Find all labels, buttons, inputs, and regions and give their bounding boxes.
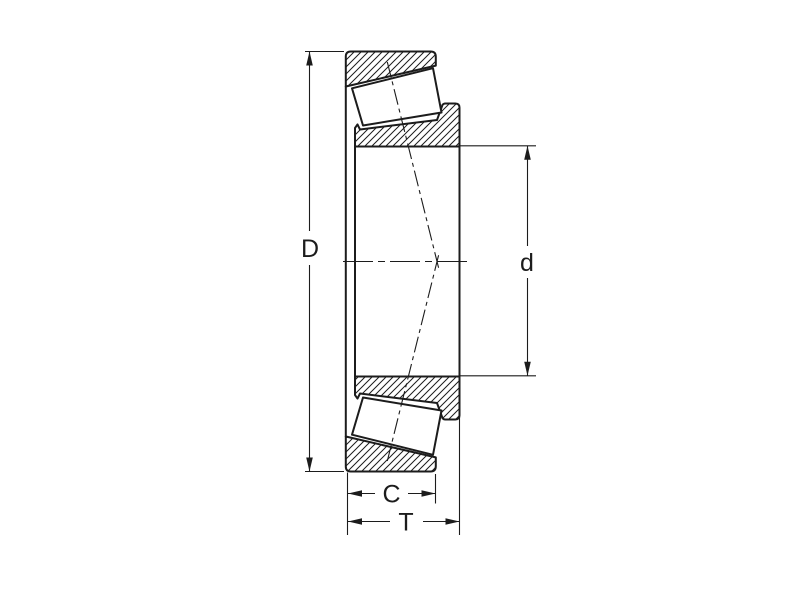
dimension-outer-diameter: D xyxy=(301,52,344,472)
arrow-up-icon xyxy=(306,52,313,66)
arrow-left-icon xyxy=(348,490,362,497)
arrow-down-icon xyxy=(524,362,531,376)
arrow-right-icon xyxy=(446,518,460,525)
dimension-bore-diameter: d xyxy=(460,146,537,376)
dimension-cup-width: C xyxy=(348,473,436,536)
bore-diameter-label: d xyxy=(520,249,534,277)
cup-width-label: C xyxy=(382,481,400,509)
arrow-right-icon xyxy=(422,490,436,497)
bearing-cross-section-svg: D d C T xyxy=(0,0,800,600)
tapered-roller-bearing-drawing: D d C T xyxy=(0,0,800,600)
arrow-up-icon xyxy=(524,146,531,160)
outer-diameter-label: D xyxy=(301,235,319,263)
arrow-left-icon xyxy=(348,518,362,525)
arrow-down-icon xyxy=(306,458,313,472)
total-width-label: T xyxy=(398,509,413,537)
